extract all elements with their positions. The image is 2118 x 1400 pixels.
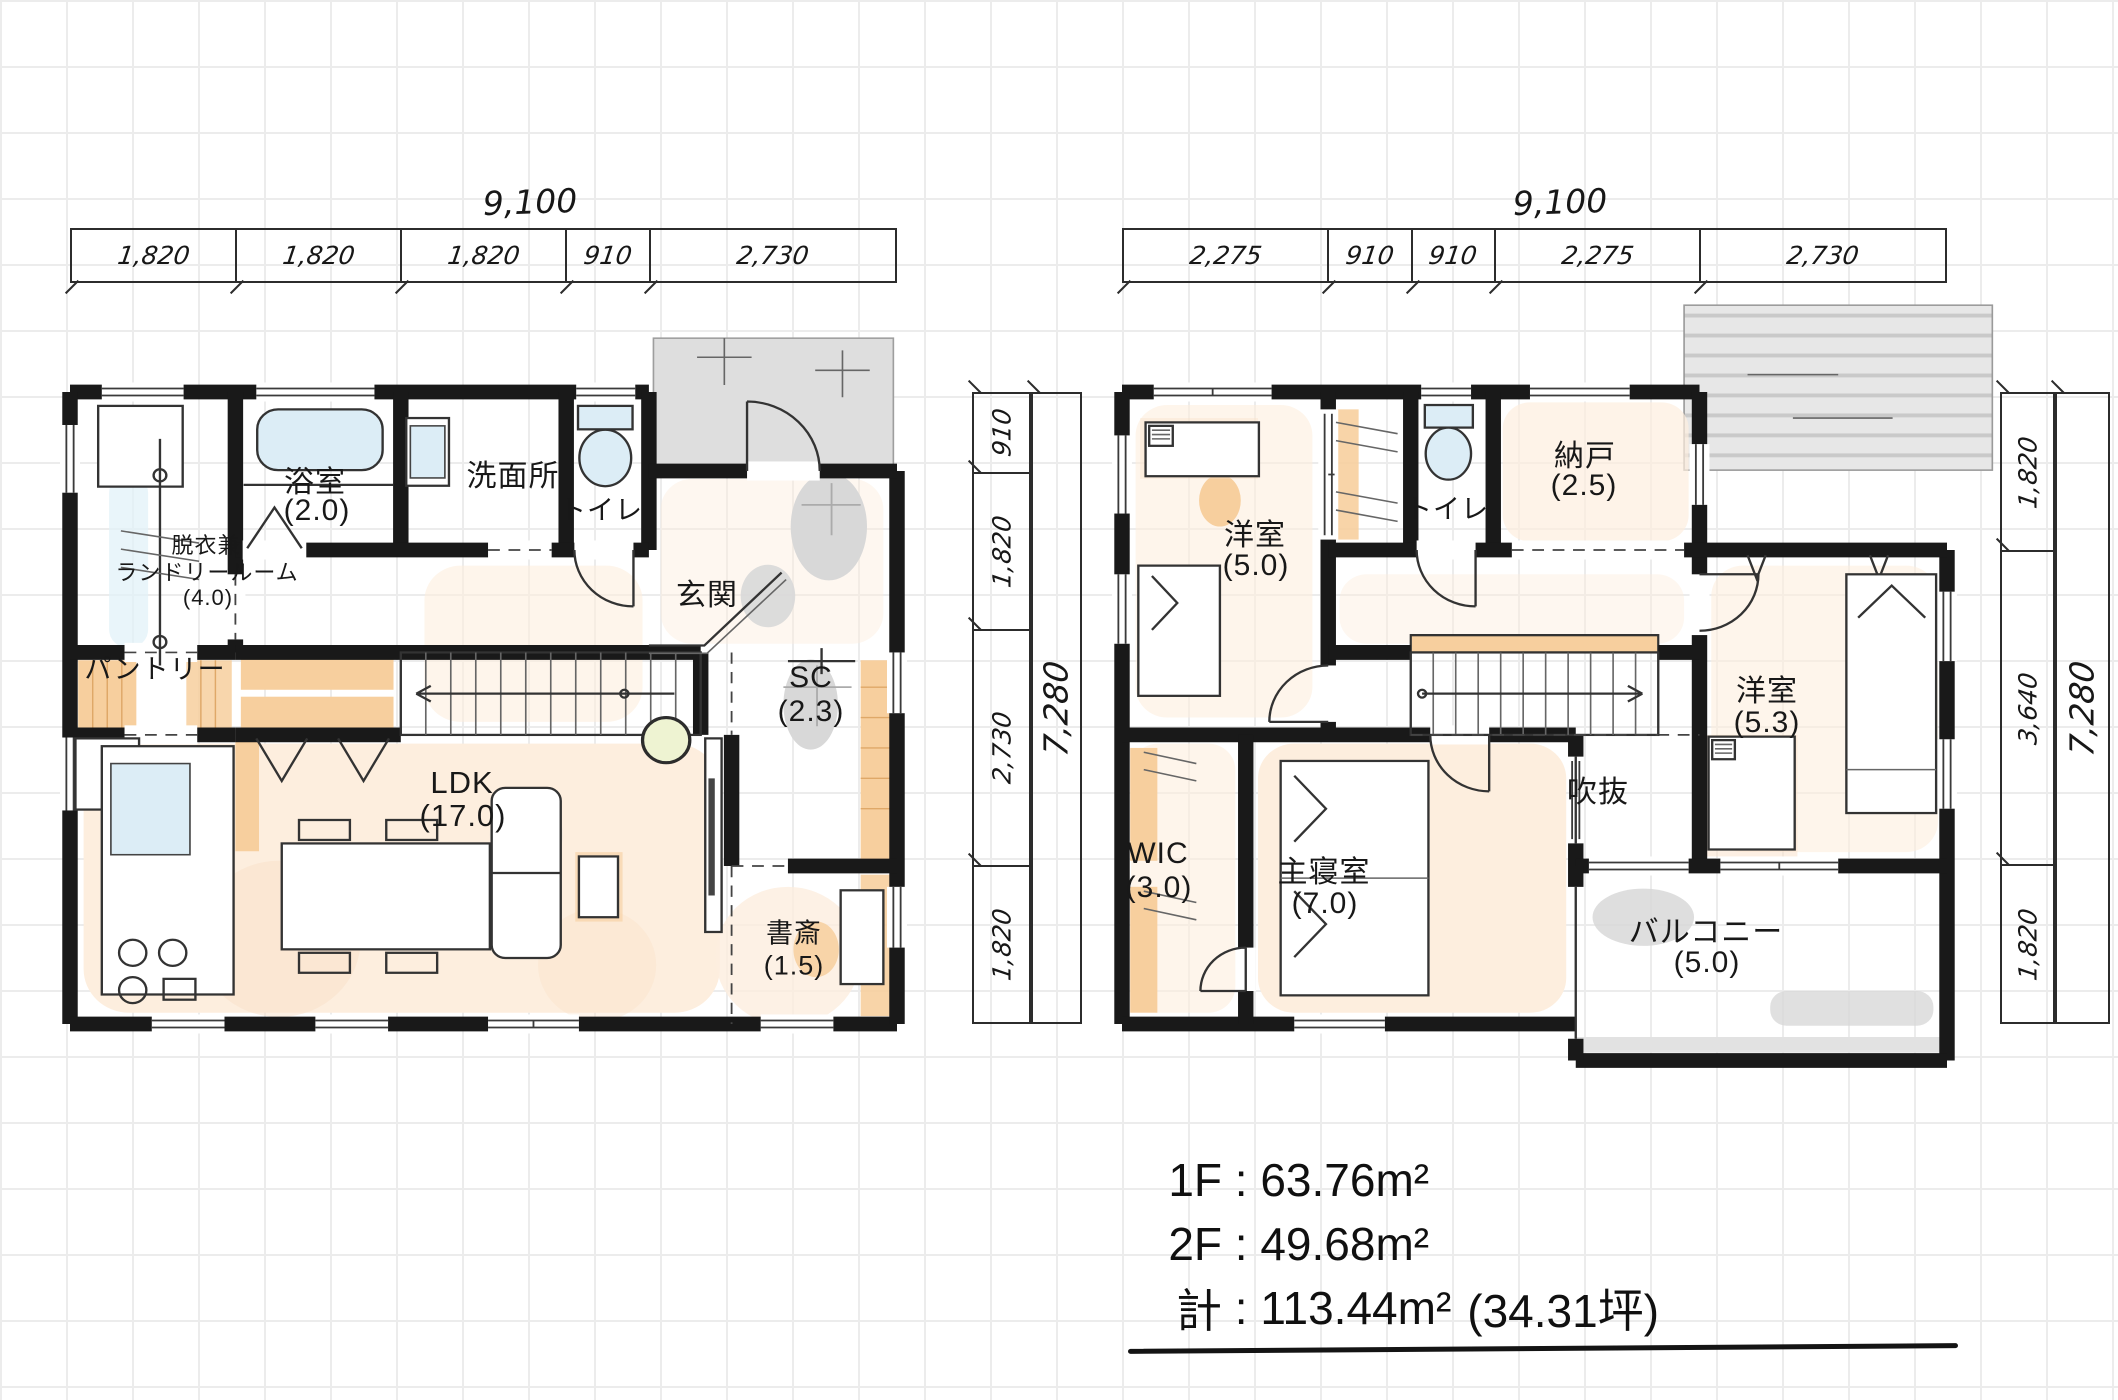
room-size-master-bedroom: (7.0) bbox=[1292, 887, 1359, 921]
room-label-shoe-closet: SC bbox=[789, 661, 833, 695]
area-separator-2f: : bbox=[1222, 1217, 1260, 1271]
desk-icon-west-bedroom bbox=[1146, 422, 1259, 476]
dim-band-right-1f: 910 1,820 2,730 1,820 bbox=[972, 392, 1031, 1024]
dim-1f-right-3: 1,820 bbox=[974, 865, 1029, 1025]
area-separator-total: : bbox=[1222, 1281, 1260, 1335]
bed-icon-east-bedroom bbox=[1846, 574, 1936, 813]
study-desk-icon bbox=[841, 890, 884, 984]
area-underline bbox=[1128, 1343, 1958, 1354]
dim-1f-total-height: 7,280 bbox=[1033, 392, 1080, 1024]
dining-table-icon bbox=[282, 820, 490, 973]
area-row-1f: 1F : 63.76m² bbox=[1128, 1148, 1958, 1212]
room-size-balcony: (5.0) bbox=[1674, 946, 1741, 980]
dim-1f-top-3: 910 bbox=[565, 230, 649, 281]
dim-2f-top-4: 2,730 bbox=[1699, 230, 1947, 281]
dim-1f-top-1: 1,820 bbox=[235, 230, 400, 281]
dim-2f-right-2: 1,820 bbox=[2002, 864, 2053, 1024]
dim-2f-total-height: 7,280 bbox=[2057, 392, 2108, 1024]
room-size-bath: (2.0) bbox=[284, 494, 351, 528]
washbasin-icon bbox=[406, 418, 449, 486]
room-size-laundry: (4.0) bbox=[183, 585, 233, 611]
room-label-wic: WIC bbox=[1127, 837, 1188, 871]
kitchen-icon bbox=[102, 746, 234, 1003]
room-label-entrance: 玄関 bbox=[676, 570, 738, 614]
room-label-ldk: LDK bbox=[430, 765, 493, 801]
room-size-study: (1.5) bbox=[764, 951, 825, 982]
area-note-tsubo: (34.31坪) bbox=[1467, 1275, 1659, 1341]
dim-band-top-2f: 2,275 910 910 2,275 2,730 bbox=[1122, 228, 1947, 283]
toilet-icon-2f bbox=[1425, 405, 1473, 480]
room-label-study: 書斎 bbox=[766, 912, 822, 951]
area-row-2f: 2F : 49.68m² bbox=[1128, 1212, 1958, 1276]
dim-1f-right-1: 1,820 bbox=[974, 472, 1029, 630]
desk-icon-east-bedroom bbox=[1709, 737, 1795, 850]
room-size-bedroom-west: (5.0) bbox=[1223, 549, 1290, 583]
room-size-bedroom-east: (5.3) bbox=[1734, 706, 1801, 740]
dim-2f-top-3: 2,275 bbox=[1494, 230, 1699, 281]
area-label-2f: 2F bbox=[1128, 1217, 1222, 1271]
dim-band-top-1f: 1,820 1,820 1,820 910 2,730 bbox=[70, 228, 897, 283]
dim-band-total-2f: 7,280 bbox=[2055, 392, 2110, 1024]
floorplan-2f-drawing bbox=[1122, 392, 1947, 1024]
room-label-laundry-2: ランドリールーム bbox=[115, 555, 298, 587]
dim-total-width-2f: 9,100 bbox=[1512, 181, 1608, 223]
area-summary: 1F : 63.76m² 2F : 49.68m² 計 : 113.44m² (… bbox=[1128, 1148, 1958, 1351]
room-label-toilet-1f: トイレ bbox=[559, 489, 643, 528]
area-value-total: 113.44m² bbox=[1260, 1281, 1451, 1335]
area-separator-1f: : bbox=[1222, 1153, 1260, 1207]
plant-icon bbox=[643, 718, 690, 763]
room-size-ldk: (17.0) bbox=[420, 798, 507, 834]
room-label-bedroom-west: 洋室 bbox=[1224, 510, 1286, 554]
side-table-icon bbox=[579, 856, 618, 917]
dim-1f-top-4: 2,730 bbox=[649, 230, 898, 281]
dim-2f-top-1: 910 bbox=[1327, 230, 1410, 281]
room-label-pantry: パントリー bbox=[84, 648, 225, 687]
area-value-2f: 49.68m² bbox=[1260, 1217, 1429, 1271]
dim-1f-top-2: 1,820 bbox=[400, 230, 565, 281]
area-label-1f: 1F bbox=[1128, 1153, 1222, 1207]
room-label-balcony: バルコニー bbox=[1629, 907, 1783, 951]
dim-1f-right-0: 910 bbox=[974, 392, 1029, 472]
dim-total-width-1f: 9,100 bbox=[482, 181, 578, 223]
dim-band-total-1f: 7,280 bbox=[1031, 392, 1082, 1024]
tv-board-icon bbox=[705, 738, 721, 932]
toilet-icon-1f bbox=[578, 406, 633, 486]
dim-1f-right-2: 2,730 bbox=[974, 629, 1029, 864]
dim-2f-top-0: 2,275 bbox=[1122, 230, 1327, 281]
dim-2f-right-1: 3,640 bbox=[2002, 550, 2053, 864]
room-label-void: 吹抜 bbox=[1567, 767, 1629, 811]
dim-2f-right-0: 1,820 bbox=[2002, 392, 2053, 550]
room-label-washroom: 洗面所 bbox=[467, 451, 560, 495]
dim-band-right-2f: 1,820 3,640 1,820 bbox=[2000, 392, 2055, 1024]
dim-1f-top-0: 1,820 bbox=[70, 230, 235, 281]
roof-hatch bbox=[1684, 305, 1992, 470]
room-label-master-bedroom: 主寝室 bbox=[1278, 847, 1371, 891]
room-label-toilet-2f: トイレ bbox=[1405, 488, 1489, 527]
entrance-porch bbox=[653, 338, 893, 468]
area-label-total: 計 bbox=[1128, 1275, 1222, 1341]
stairs-2f bbox=[1411, 652, 1659, 734]
bed-icon-west-bedroom bbox=[1138, 566, 1220, 696]
room-size-shoe-closet: (2.3) bbox=[778, 695, 845, 729]
floorplan-sheet: { "colors": { "wall": "#191919", "wood_a… bbox=[0, 0, 2118, 1400]
room-size-storage: (2.5) bbox=[1551, 469, 1618, 503]
room-label-bedroom-east: 洋室 bbox=[1736, 666, 1798, 710]
area-row-total: 計 : 113.44m² (34.31坪) bbox=[1128, 1276, 1958, 1340]
area-value-1f: 63.76m² bbox=[1260, 1153, 1429, 1207]
dim-2f-top-2: 910 bbox=[1411, 230, 1494, 281]
room-size-wic: (3.0) bbox=[1126, 871, 1193, 905]
